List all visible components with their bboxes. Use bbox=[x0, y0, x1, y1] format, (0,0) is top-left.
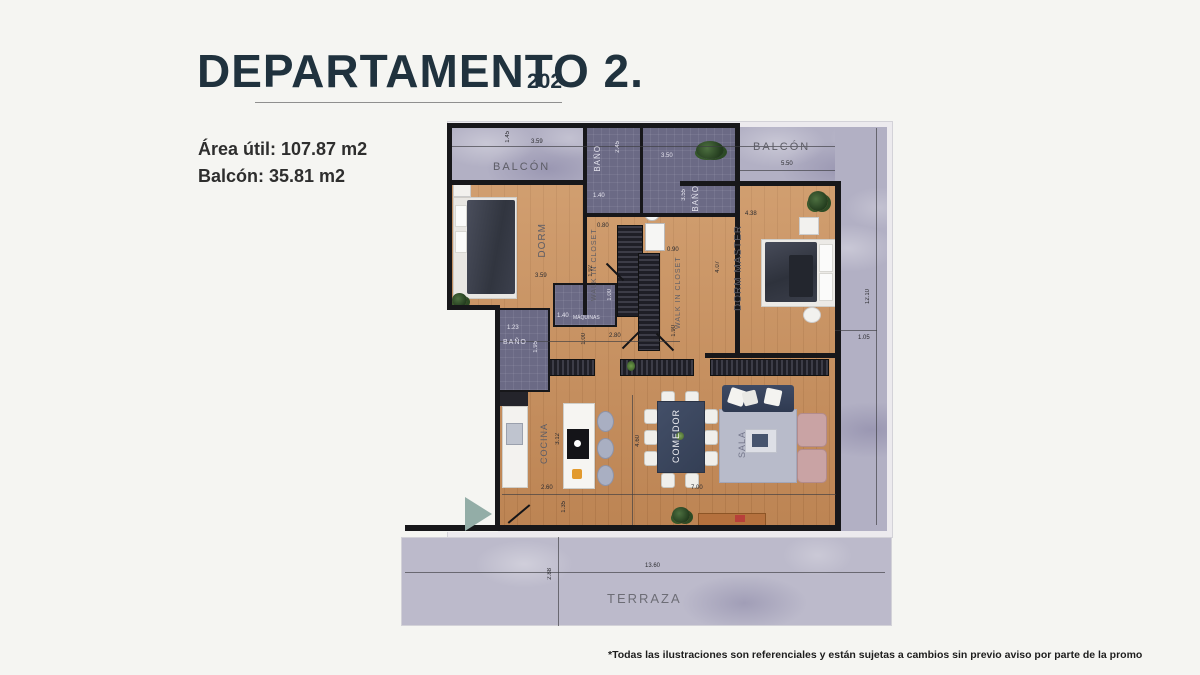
dim-label: 2.60 bbox=[541, 485, 553, 491]
room-label-comedor: COMEDOR bbox=[671, 409, 681, 463]
dim-label: 2.80 bbox=[609, 333, 621, 339]
wall bbox=[680, 181, 840, 186]
room-label-bano-1: BAÑO bbox=[593, 145, 602, 172]
dim-label: 1.40 bbox=[557, 313, 569, 319]
wall bbox=[447, 305, 500, 310]
wall bbox=[640, 125, 643, 215]
dimension-line bbox=[876, 128, 877, 525]
stool bbox=[597, 438, 614, 459]
dimension-line bbox=[502, 494, 836, 495]
pillow bbox=[819, 273, 833, 301]
pillow bbox=[819, 244, 833, 272]
dim-label: 1.00 bbox=[607, 289, 613, 301]
pillow bbox=[455, 231, 467, 253]
room-label-balcon-right: BALCÓN bbox=[753, 141, 810, 153]
room-label-bano-2: BAÑO bbox=[691, 185, 700, 212]
dim-label: 3.50 bbox=[661, 153, 673, 159]
dimension-line bbox=[500, 341, 680, 342]
room-label-terraza: TERRAZA bbox=[607, 591, 682, 606]
dining-chair bbox=[661, 473, 675, 488]
dim-label: 1.45 bbox=[505, 131, 511, 143]
dim-label: 1.95 bbox=[533, 341, 539, 353]
dim-label: 2.88 bbox=[547, 568, 553, 580]
dining-chair bbox=[704, 409, 718, 424]
dim-label: 13.60 bbox=[645, 563, 660, 569]
sideboard-decor bbox=[735, 515, 745, 522]
dining-chair bbox=[704, 451, 718, 466]
dim-label: 4.38 bbox=[745, 211, 757, 217]
disclaimer-text: *Todas las ilustraciones son referencial… bbox=[608, 649, 1142, 661]
wall bbox=[452, 180, 585, 185]
dim-label: 3.55 bbox=[681, 189, 687, 201]
dining-chair bbox=[644, 451, 658, 466]
wall bbox=[447, 123, 740, 128]
dim-label: 12.10 bbox=[865, 289, 871, 304]
dim-label: 1.23 bbox=[507, 325, 519, 331]
dim-label: 3.12 bbox=[555, 433, 561, 445]
pillow bbox=[455, 205, 467, 227]
island-decor bbox=[572, 469, 582, 479]
nightstand bbox=[803, 307, 821, 323]
bath-sink bbox=[645, 223, 665, 251]
wall bbox=[583, 125, 587, 315]
dim-label: 3.59 bbox=[535, 273, 547, 279]
dining-chair bbox=[644, 430, 658, 445]
dim-label: 4.07 bbox=[715, 261, 721, 273]
kitchen-counter bbox=[502, 406, 528, 488]
dining-chair bbox=[704, 430, 718, 445]
dim-label: 2.45 bbox=[615, 141, 621, 153]
dim-label: 1.40 bbox=[593, 193, 605, 199]
balcony-left-floor bbox=[452, 127, 590, 183]
wall bbox=[495, 305, 500, 531]
plant bbox=[808, 191, 828, 211]
hall-cabinet bbox=[546, 359, 595, 376]
dining-chair bbox=[644, 409, 658, 424]
dimension-line bbox=[632, 395, 633, 525]
balcon-area-text: Balcón: 35.81 m2 bbox=[198, 163, 367, 190]
dim-label: 1.90 bbox=[671, 325, 677, 337]
cooktop-burner bbox=[574, 440, 581, 447]
bathroom-3 bbox=[495, 308, 550, 392]
room-label-balcon-left: BALCÓN bbox=[493, 161, 550, 173]
bed-throw bbox=[789, 255, 813, 297]
master-closet bbox=[710, 359, 829, 376]
dimension-line bbox=[740, 170, 835, 171]
stool bbox=[597, 465, 614, 486]
dim-label: 3.59 bbox=[531, 139, 543, 145]
nightstand bbox=[453, 183, 471, 197]
plant bbox=[696, 141, 724, 159]
page-title: DEPARTAMENTO 2. bbox=[197, 44, 644, 98]
area-util-text: Área útil: 107.87 m2 bbox=[198, 136, 367, 163]
play-triangle-icon[interactable] bbox=[465, 497, 492, 531]
dimension-tick bbox=[835, 330, 877, 331]
bathroom-1 bbox=[583, 125, 643, 217]
dimension-line bbox=[558, 537, 559, 626]
room-label-dorm-master: DORM MASTER bbox=[733, 225, 744, 311]
room-label-dorm: DORM bbox=[537, 223, 548, 258]
dim-label: 1.05 bbox=[858, 335, 870, 341]
dimension-line bbox=[405, 572, 885, 573]
plant bbox=[672, 507, 690, 523]
armchair bbox=[797, 449, 827, 483]
unit-number: 202 bbox=[527, 70, 562, 94]
plant-pot bbox=[627, 361, 635, 371]
floor-plan: 1.45 3.59 2.45 1.40 3.50 3.55 5.50 3.59 … bbox=[395, 113, 895, 633]
dim-label: 1.35 bbox=[561, 501, 567, 513]
page-title-text: DEPARTAMENTO 2. bbox=[197, 45, 644, 97]
room-label-bano-3: BAÑO bbox=[503, 339, 527, 346]
dim-label: 1.92 bbox=[588, 265, 594, 277]
terraza-area bbox=[401, 537, 892, 626]
dim-label: 4.60 bbox=[635, 435, 641, 447]
dim-label: 0.90 bbox=[667, 247, 679, 253]
armchair bbox=[797, 413, 827, 447]
nightstand bbox=[799, 217, 819, 235]
coffee-table-tray bbox=[752, 434, 768, 447]
dorm-duvet bbox=[467, 200, 515, 294]
wall bbox=[447, 123, 452, 310]
room-label-sala: SALA bbox=[737, 431, 747, 458]
dim-label: 7.00 bbox=[691, 485, 703, 491]
area-info: Área útil: 107.87 m2 Balcón: 35.81 m2 bbox=[198, 136, 367, 190]
dim-label: 5.50 bbox=[781, 161, 793, 167]
bathroom-2 bbox=[640, 125, 738, 217]
walkin-closet-2-wardrobe bbox=[638, 253, 660, 351]
dim-label: 0.80 bbox=[597, 223, 609, 229]
stool bbox=[597, 411, 614, 432]
wall bbox=[583, 213, 738, 217]
title-underline bbox=[255, 102, 562, 103]
room-label-walkin-2: WALK IN CLOSET bbox=[675, 263, 693, 329]
dim-label: 1.00 bbox=[581, 333, 587, 345]
wall bbox=[705, 353, 840, 358]
room-label-maquinas: MÁQUINAS bbox=[573, 315, 600, 321]
room-label-cocina: COCINA bbox=[539, 423, 549, 464]
side-balcony-floor bbox=[835, 127, 887, 531]
sofa-cushion bbox=[764, 388, 783, 407]
kitchen-sink bbox=[506, 423, 523, 445]
